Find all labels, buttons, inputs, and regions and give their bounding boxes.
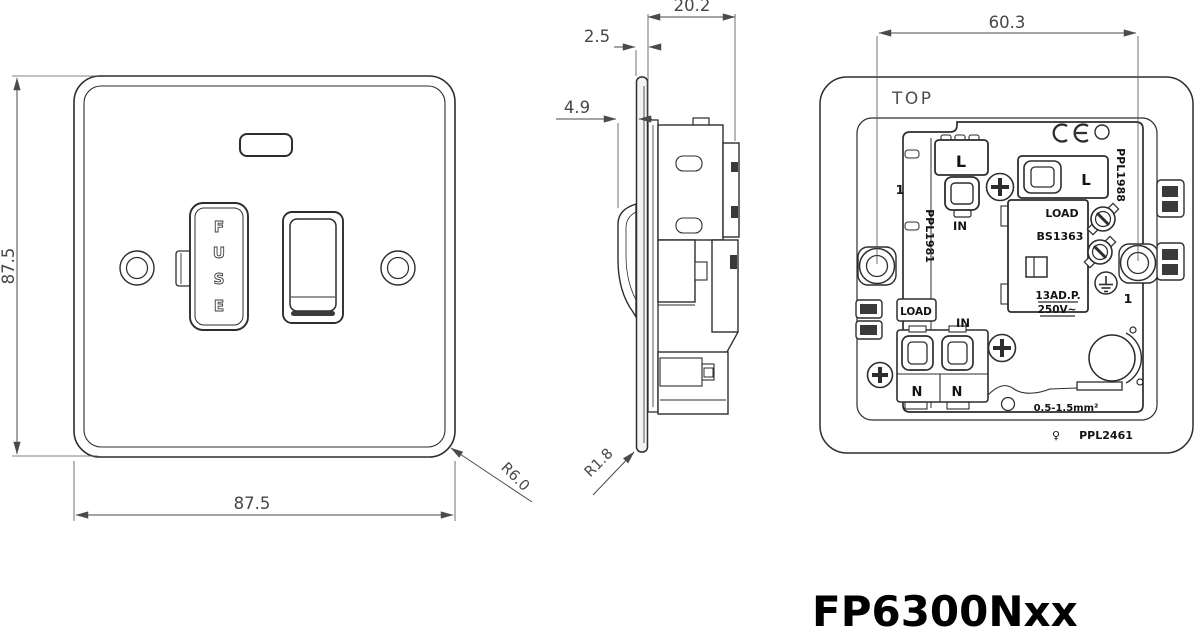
dim-depth-label: 20.2 xyxy=(674,0,711,15)
dim-fixing-centres-label: 60.3 xyxy=(989,13,1026,32)
fuse-carrier-load-label: LOAD xyxy=(1045,207,1078,220)
dim-height-label: 87.5 xyxy=(0,248,18,285)
front-view: F U S E 87.5 87.5 R6.0 xyxy=(0,76,532,521)
terminal-load-left-label: LOAD xyxy=(900,306,932,318)
phillips-screw-icon xyxy=(989,335,1016,362)
dim-corner-radius-label: R6.0 xyxy=(497,460,532,495)
part-number: FP6300Nxx xyxy=(812,587,1078,635)
mould-ref-left: PPL1981 xyxy=(923,209,936,263)
phillips-screw-icon xyxy=(868,363,893,388)
side-lower-terminal-block xyxy=(658,352,728,414)
fuse-rating-line2: 250V~ xyxy=(1038,304,1077,316)
terminal-neutral-1-label: N xyxy=(912,385,923,400)
dim-switch-protrusion-label: 4.9 xyxy=(564,98,590,117)
technical-drawing: F U S E 87.5 87.5 R6.0 xyxy=(0,0,1200,635)
fuse-letter-e: E xyxy=(214,297,224,315)
fuse-rating-line1: 13AD.P. xyxy=(1035,290,1080,302)
orientation-label: TOP xyxy=(891,89,934,109)
wire-clamp-cage xyxy=(945,177,979,210)
earth-symbol-icon xyxy=(1095,272,1117,294)
back-view: TOP 1 PPL1981 LOAD L IN xyxy=(820,13,1193,453)
fuse-letter-u: U xyxy=(213,244,225,262)
wire-capacity-label: 0.5-1.5mm² xyxy=(1034,403,1099,414)
side-slot-upper xyxy=(676,156,702,171)
phillips-screw-icon xyxy=(987,174,1014,201)
terminal-live-right: L xyxy=(1018,156,1108,198)
mould-ref-bottom: PPL2461 xyxy=(1079,429,1133,442)
side-view: 20.2 2.5 4.9 R1.8 xyxy=(556,0,739,495)
terminal-in-top-label: IN xyxy=(953,219,967,233)
dim-plate-thickness-label: 2.5 xyxy=(584,27,610,46)
neutral-terminal-block: N N xyxy=(897,326,988,409)
terminal-in-bottom-label: IN xyxy=(956,316,970,330)
side-body-profile xyxy=(658,118,739,414)
material-mark-icon: ♀ xyxy=(1052,429,1060,442)
terminal-live-top-label: L xyxy=(956,152,966,171)
dim-width-label: 87.5 xyxy=(234,494,271,513)
side-slot-lower xyxy=(676,218,702,233)
fuse-carrier: LOAD BS1363 13AD.P. 250V~ xyxy=(1001,200,1088,316)
terminal-neutral-2-label: N xyxy=(952,385,963,400)
fuse-holder-tab xyxy=(176,251,191,286)
cavity-number-right: 1 xyxy=(1124,291,1133,306)
side-faceplate-section xyxy=(637,77,648,452)
mould-ref-right: PPL1988 xyxy=(1114,148,1127,202)
fixing-hole-right xyxy=(1119,244,1158,283)
cavity-number-left: 1 xyxy=(896,182,905,197)
fuse-carrier-standard-label: BS1363 xyxy=(1037,230,1084,243)
rocker-switch xyxy=(283,212,343,323)
fuse-letter-s: S xyxy=(214,270,225,288)
terminal-live-right-label: L xyxy=(1081,171,1091,189)
fuse-letter-f: F xyxy=(214,218,224,236)
